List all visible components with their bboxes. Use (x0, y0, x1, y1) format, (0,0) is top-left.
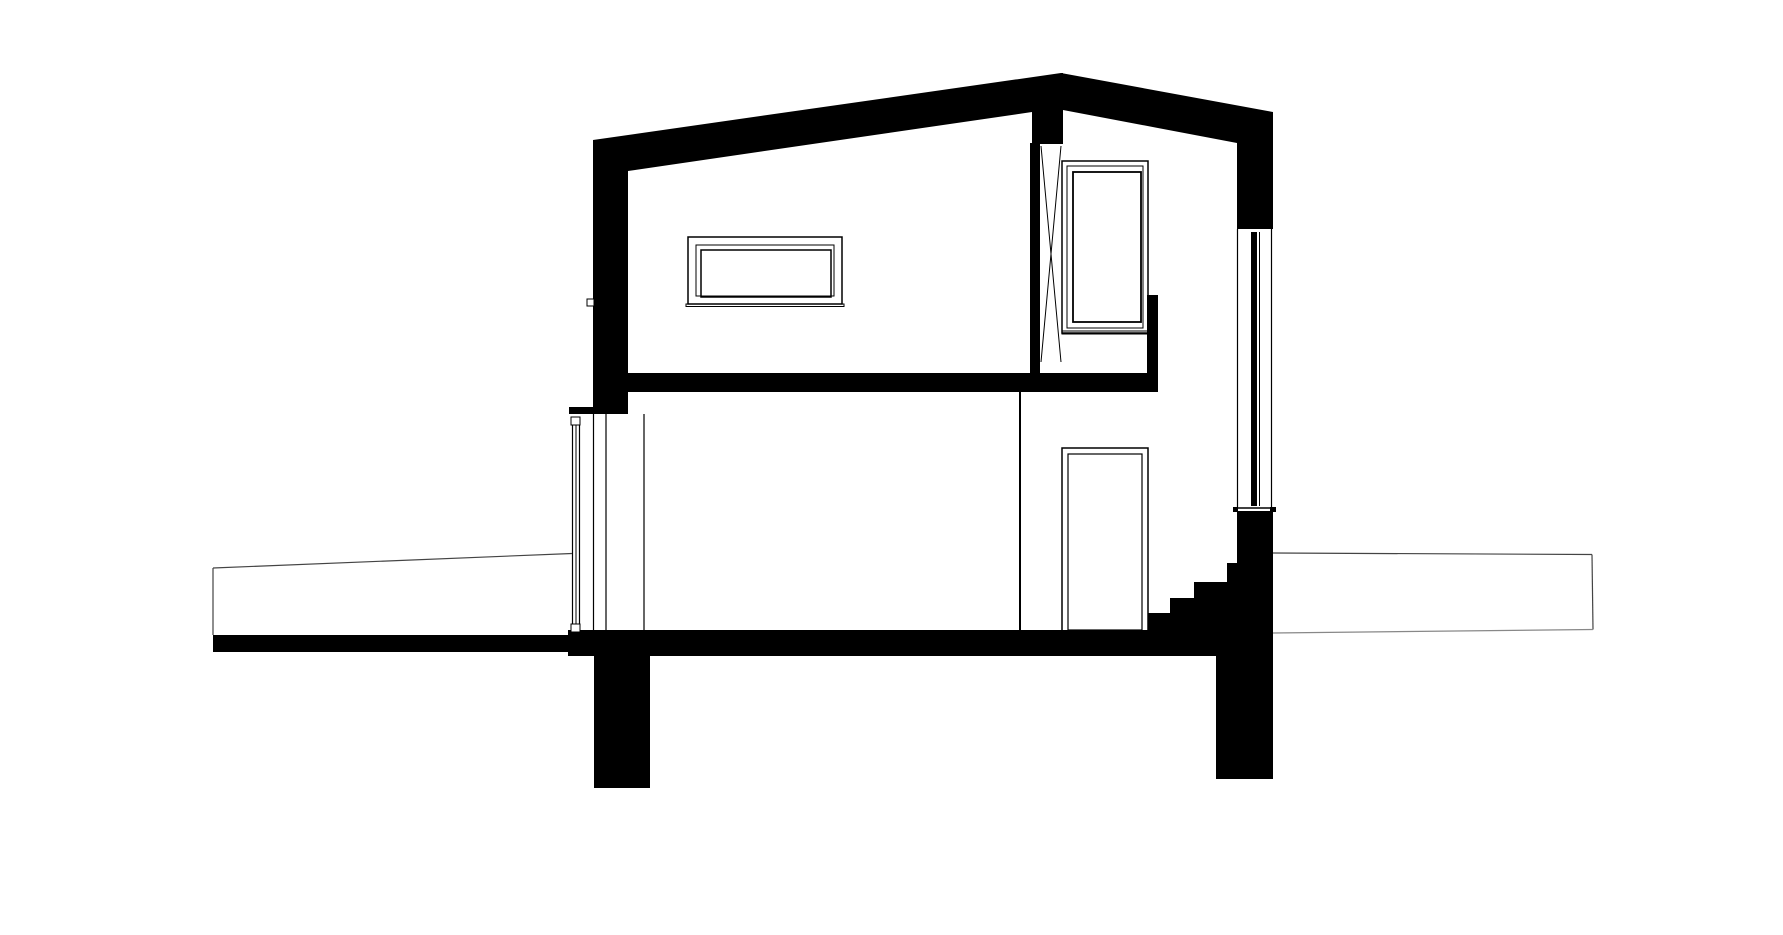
mid-floor-slab (593, 373, 1158, 392)
upper-left-wall (593, 140, 628, 414)
tall-window-inner-frame (1073, 172, 1141, 322)
lower-window-frame-top (571, 417, 580, 425)
left-foundation-pier (594, 656, 650, 788)
right-terrace-edge-line (1592, 555, 1593, 630)
house-floor-band (568, 630, 1273, 656)
right-terrace-bottom-line (1273, 630, 1593, 634)
right-terrace-surface-line (1273, 553, 1592, 555)
tall-window-mid-frame (1067, 166, 1143, 328)
upper-window-sill (686, 304, 844, 307)
ridge-strip-wall (1030, 143, 1040, 375)
stair-mass (1148, 511, 1273, 632)
wall-marker-square (587, 299, 594, 306)
lower-window-frame-bottom (571, 624, 580, 632)
roof-left-band (593, 73, 1063, 171)
right-foundation-pier (1216, 656, 1273, 779)
left-terrace-surface-line (213, 554, 572, 569)
glazing-mullion (1251, 232, 1257, 506)
door-leaf (1068, 454, 1142, 630)
architectural-section-svg (0, 0, 1783, 935)
ridge-post (1032, 100, 1063, 144)
tall-window-outer-frame (1062, 161, 1148, 333)
drawing-canvas (0, 0, 1783, 935)
upper-window-mid-frame (696, 245, 834, 296)
upper-window-inner-frame (701, 250, 831, 297)
upper-window-outer-frame (688, 237, 842, 304)
right-eave-wall (1237, 112, 1273, 229)
door-frame (1062, 448, 1148, 632)
lower-window-head-ledge (569, 407, 628, 414)
